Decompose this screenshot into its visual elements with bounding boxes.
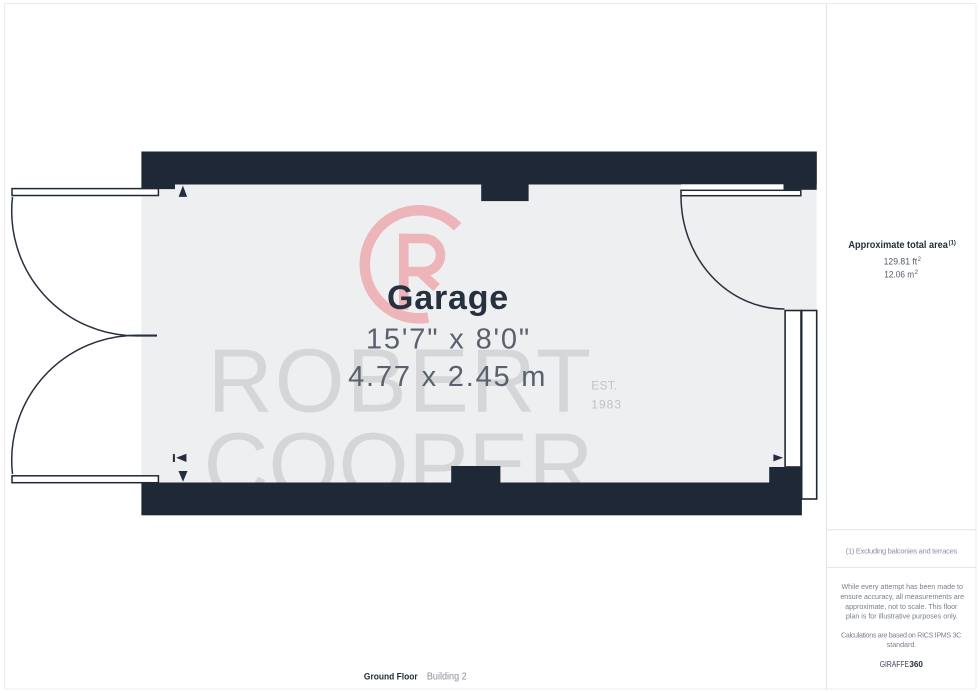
svg-text:Garage: Garage (387, 279, 509, 317)
svg-text:(1): (1) (949, 241, 956, 247)
svg-text:12.06 m: 12.06 m (884, 270, 914, 281)
svg-text:2: 2 (915, 270, 919, 276)
svg-text:While every attempt has been m: While every attempt has been made to (841, 583, 963, 591)
svg-text:2: 2 (918, 257, 922, 263)
svg-text:approximate, not to scale. Thi: approximate, not to scale. This floor (845, 603, 958, 611)
svg-text:(1) Excluding balconies and te: (1) Excluding balconies and terraces (846, 546, 958, 555)
svg-text:standard.: standard. (887, 641, 917, 649)
svg-text:EST.: EST. (591, 379, 617, 393)
svg-text:1983: 1983 (591, 397, 622, 411)
svg-text:Approximate total area: Approximate total area (848, 240, 948, 251)
svg-text:Building 2: Building 2 (427, 672, 467, 683)
svg-text:ensure accuracy, all measureme: ensure accuracy, all measurements are (840, 593, 964, 601)
svg-text:Calculations are based on RICS: Calculations are based on RICS IPMS 3C (841, 631, 961, 639)
svg-text:4.77 x 2.45 m: 4.77 x 2.45 m (348, 361, 547, 393)
svg-text:GIRAFFE: GIRAFFE (880, 660, 909, 669)
svg-text:360: 360 (909, 660, 923, 669)
svg-text:plan is for illustrative purpo: plan is for illustrative purposes only. (846, 613, 958, 621)
svg-text:129.81 ft: 129.81 ft (884, 256, 918, 267)
svg-text:15'7" x 8'0": 15'7" x 8'0" (366, 324, 531, 356)
svg-text:Ground Floor: Ground Floor (364, 672, 418, 683)
